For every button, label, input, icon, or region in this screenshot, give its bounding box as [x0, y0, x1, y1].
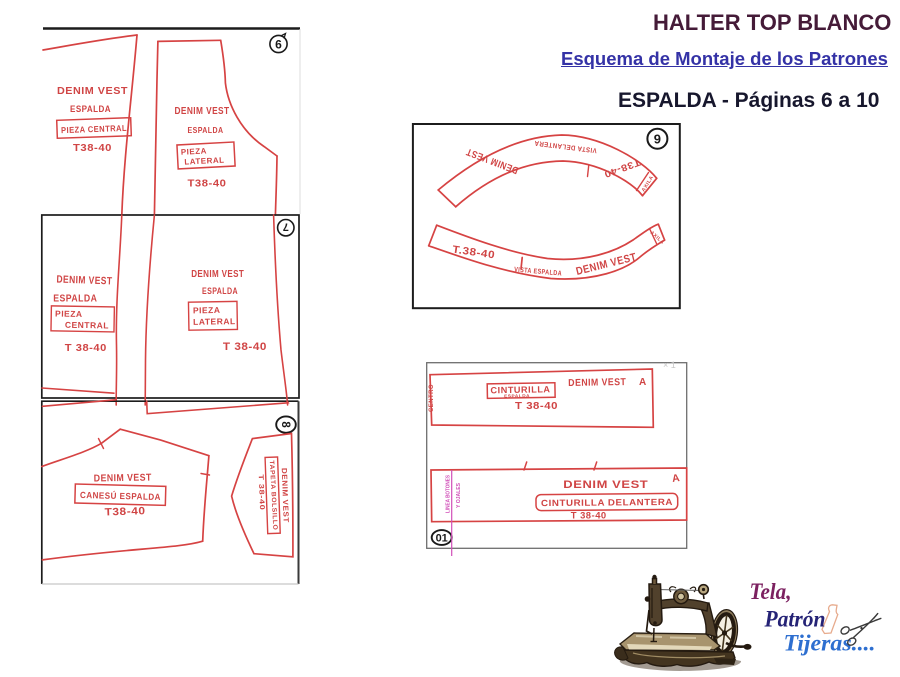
svg-text:Patrón: Patrón [764, 607, 826, 632]
svg-text:T38-40: T38-40 [602, 156, 641, 179]
svg-text:T38-40: T38-40 [188, 179, 227, 190]
svg-text:TAPETA BOLSILLO: TAPETA BOLSILLO [268, 460, 279, 530]
svg-text:ESPALDA: ESPALDA [202, 286, 238, 296]
svg-text:7: 7 [283, 220, 289, 232]
svg-text:CINTURILLA DELANTERA: CINTURILLA DELANTERA [541, 497, 673, 508]
svg-text:9: 9 [654, 132, 661, 147]
svg-text:A: A [639, 377, 647, 388]
svg-text:CANESÚ ESPALDA: CANESÚ ESPALDA [80, 489, 161, 502]
svg-text:× 1: × 1 [663, 360, 676, 370]
svg-text:ESPALDA: ESPALDA [188, 125, 224, 135]
svg-text:Tijeras....: Tijeras.... [784, 631, 876, 656]
svg-text:PIEZA: PIEZA [193, 305, 221, 315]
svg-text:A: A [671, 472, 681, 485]
svg-text:01: 01 [436, 533, 448, 545]
svg-text:DENIM VEST: DENIM VEST [191, 268, 244, 280]
svg-text:PIEZA: PIEZA [181, 146, 207, 156]
svg-text:T38-40: T38-40 [73, 143, 112, 154]
svg-text:Y OJALES: Y OJALES [456, 482, 462, 508]
svg-text:8: 8 [279, 421, 291, 428]
svg-text:PIEZA CENTRAL: PIEZA CENTRAL [61, 123, 127, 135]
svg-text:DENIM VEST: DENIM VEST [57, 85, 128, 97]
svg-text:DENIM VEST: DENIM VEST [280, 468, 291, 523]
svg-text:CENTRO: CENTRO [428, 384, 435, 412]
svg-text:ESPALDA: ESPALDA [53, 294, 97, 305]
svg-text:Tela,: Tela, [750, 579, 792, 604]
svg-text:DENIM VEST: DENIM VEST [56, 274, 112, 288]
svg-text:T 38-40: T 38-40 [65, 342, 107, 354]
svg-text:PIEZA: PIEZA [55, 309, 83, 319]
svg-text:VISTA DELANTERA: VISTA DELANTERA [534, 139, 597, 154]
svg-text:DENIM VEST: DENIM VEST [94, 472, 152, 484]
svg-text:T 38-40: T 38-40 [223, 341, 267, 353]
svg-text:T38-40: T38-40 [104, 505, 145, 518]
svg-text:DENIM VEST: DENIM VEST [465, 145, 520, 175]
svg-text:T 38-40: T 38-40 [571, 511, 607, 522]
svg-text:ESPALDA: ESPALDA [504, 393, 530, 398]
svg-text:LATERAL: LATERAL [184, 156, 225, 167]
svg-text:DENIM VEST: DENIM VEST [568, 377, 626, 389]
svg-text:T.38-40: T.38-40 [452, 244, 496, 262]
svg-text:ESPALDA: ESPALDA [70, 104, 111, 114]
svg-text:DENIM VEST: DENIM VEST [175, 106, 230, 117]
svg-text:LATERAL: LATERAL [193, 316, 236, 327]
svg-text:LINEA BOTONES: LINEA BOTONES [446, 475, 452, 513]
svg-text:6: 6 [275, 38, 282, 52]
svg-text:T 38-40: T 38-40 [257, 474, 265, 510]
svg-text:T 38-40: T 38-40 [515, 400, 558, 412]
svg-text:CENTRAL: CENTRAL [65, 320, 109, 331]
svg-text:DENIM VEST: DENIM VEST [563, 479, 648, 491]
